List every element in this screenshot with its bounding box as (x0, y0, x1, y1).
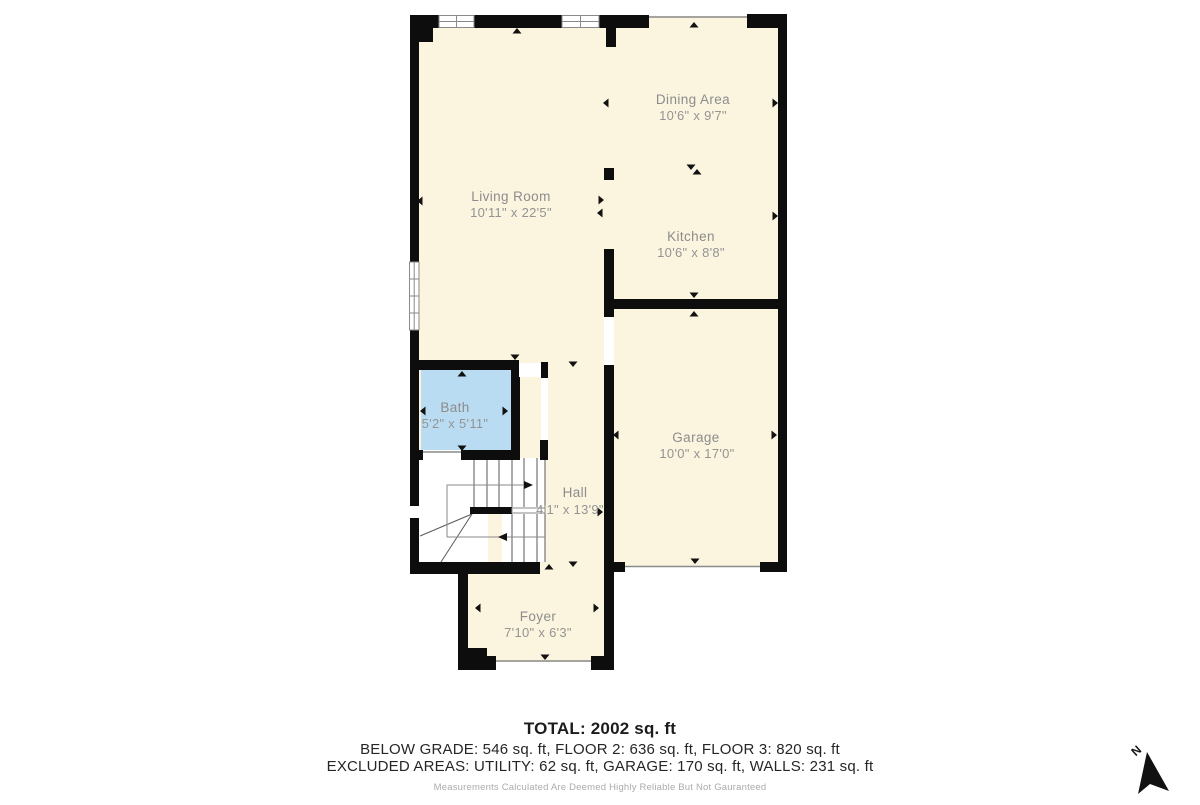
room-dims-hall: 4'1" x 13'9" (536, 502, 604, 517)
staircase (419, 458, 545, 562)
floorplan-svg: Dining Area 10'6" x 9'7" Living Room 10'… (0, 0, 1200, 805)
room-label-garage: Garage (672, 430, 719, 445)
room-dims-dining: 10'6" x 9'7" (659, 108, 727, 123)
window-top-left (439, 16, 474, 28)
foyer-entry-exterior (496, 662, 591, 671)
nook-side-door-gap (541, 378, 548, 440)
garage-entry-exterior (625, 567, 760, 573)
room-dims-foyer: 7'10" x 6'3" (504, 625, 572, 640)
disclaimer-text: Measurements Calculated Are Deemed Highl… (0, 782, 1200, 793)
garage-door-gap (604, 317, 614, 365)
floorplan-canvas: Dining Area 10'6" x 9'7" Living Room 10'… (0, 0, 1200, 805)
stair-divider (470, 507, 512, 514)
stair-wall-gap (410, 506, 419, 518)
room-label-kitchen: Kitchen (667, 229, 715, 244)
room-label-bath: Bath (440, 400, 469, 415)
room-label-dining: Dining Area (656, 92, 730, 107)
excluded-areas-text: EXCLUDED AREAS: UTILITY: 62 sq. ft, GARA… (0, 758, 1200, 775)
room-label-hall: Hall (563, 485, 588, 500)
room-label-foyer: Foyer (520, 609, 557, 624)
room-dims-garage: 10'0" x 17'0" (659, 446, 734, 461)
room-dims-kitchen: 10'6" x 8'8" (657, 245, 725, 260)
floor-areas-text: BELOW GRADE: 546 sq. ft, FLOOR 2: 636 sq… (0, 741, 1200, 758)
window-left-upper (410, 262, 420, 296)
total-area-text: TOTAL: 2002 sq. ft (0, 719, 1200, 739)
room-dims-living: 10'11" x 22'5" (470, 205, 552, 220)
area-summary: TOTAL: 2002 sq. ft BELOW GRADE: 546 sq. … (0, 719, 1200, 793)
window-top-right (562, 16, 599, 28)
room-label-living: Living Room (471, 189, 550, 204)
room-dims-bath: 5'2" x 5'11" (422, 416, 489, 431)
nook-top-door-gap (519, 363, 541, 377)
stair-mid-strip (488, 514, 502, 562)
window-left-lower (410, 296, 420, 330)
